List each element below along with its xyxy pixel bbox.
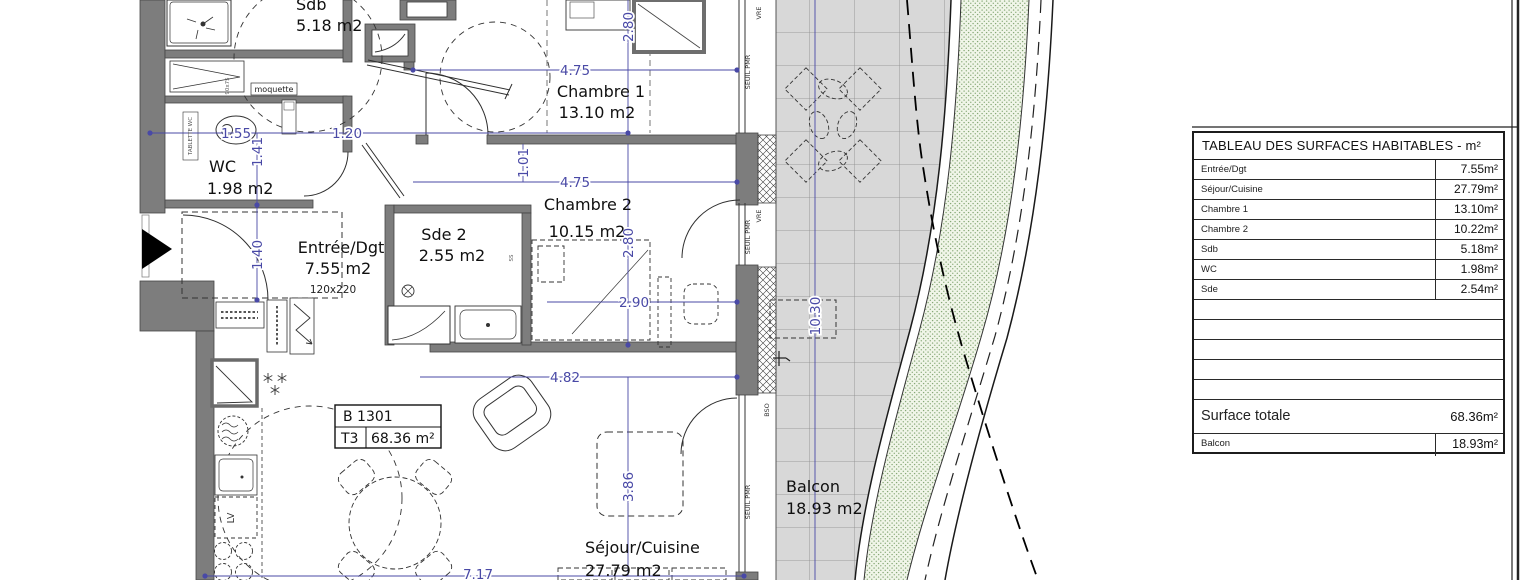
- insulated-wall-hatch: [758, 135, 776, 203]
- row-value: 13.10m²: [1435, 200, 1503, 219]
- room-area-sdb: 5.18 m2: [296, 16, 362, 35]
- dim-10-30: 10.30: [808, 297, 824, 336]
- insulated-wall-hatch: [758, 267, 776, 393]
- room-label-balcon: Balcon: [786, 477, 840, 496]
- table-row: Séjour/Cuisine 27.79m²: [1194, 180, 1503, 200]
- table-balcony-row: Balcon 18.93m²: [1194, 434, 1503, 456]
- room-label-wc: WC: [209, 157, 236, 176]
- dim-1-01: 1.01: [516, 148, 532, 178]
- room-label-entree: Entrée/Dgt: [298, 238, 385, 257]
- dim-1-20: 1.20: [332, 126, 362, 142]
- row-value: 10.22m²: [1435, 220, 1503, 239]
- room-label-sdb: Sdb: [296, 0, 326, 14]
- row-label: Séjour/Cuisine: [1194, 180, 1435, 199]
- table-row: Sdb 5.18m²: [1194, 240, 1503, 260]
- table-total-row: Surface totale 68.36m²: [1194, 400, 1503, 434]
- label-seuil-pmr-2: SEUIL PMR: [744, 219, 752, 254]
- label-tablette-wc: TABLETTE WC: [188, 117, 194, 156]
- row-label: Entrée/Dgt: [1194, 160, 1435, 179]
- room-label-chambre1: Chambre 1: [557, 82, 645, 101]
- label-seuil-pmr-3: SEUIL PMR: [744, 484, 752, 519]
- entrance-arrow-icon: [142, 229, 172, 269]
- armchair: [467, 369, 557, 457]
- architectural-sheet: 4.75 2.80 1.55 1.20 1.41 1.40 1.01 4.75 …: [0, 0, 1527, 580]
- table-empty-row: [1194, 320, 1503, 340]
- dim-1-41: 1.41: [250, 137, 266, 167]
- dim-2-90: 2.90: [619, 295, 649, 311]
- table-row: Entrée/Dgt 7.55m²: [1194, 160, 1503, 180]
- room-area-sde2: 2.55 m2: [419, 246, 485, 265]
- kitchen-units: [212, 298, 314, 580]
- unit-code: B 1301: [343, 409, 393, 425]
- table-row: WC 1.98m²: [1194, 260, 1503, 280]
- desk-and-chair: [658, 277, 718, 347]
- room-area-sejour: 27.79 m2: [585, 561, 662, 580]
- balcony-value: 18.93m²: [1435, 434, 1503, 456]
- room-label-sejour: Séjour/Cuisine: [585, 538, 700, 557]
- total-value: 68.36m²: [1435, 400, 1503, 433]
- row-value: 1.98m²: [1435, 260, 1503, 279]
- row-value: 2.54m²: [1435, 280, 1503, 299]
- unit-label-box: B 1301 T3 68.36 m²: [335, 405, 441, 448]
- room-area-chambre2: 10.15 m2: [549, 222, 626, 241]
- surfaces-table-title: TABLEAU DES SURFACES HABITABLES - m²: [1194, 133, 1503, 160]
- label-vre-2: VRE: [755, 209, 763, 222]
- dim-1-55: 1.55: [221, 126, 251, 142]
- room-area-balcon: 18.93 m2: [786, 499, 863, 518]
- label-moquette: moquette: [255, 85, 294, 94]
- dim-4-75-mid: 4.75: [560, 175, 590, 191]
- table-empty-row: [1194, 360, 1503, 380]
- room-area-chambre1: 13.10 m2: [559, 103, 636, 122]
- row-label: Chambre 2: [1194, 220, 1435, 239]
- dim-4-82: 4.82: [550, 370, 580, 386]
- table-row: Chambre 2 10.22m²: [1194, 220, 1503, 240]
- row-label: Sde: [1194, 280, 1435, 299]
- dining-table: [335, 456, 455, 580]
- row-value: 7.55m²: [1435, 160, 1503, 179]
- label-bso: BSO: [763, 403, 771, 417]
- row-value: 5.18m²: [1435, 240, 1503, 259]
- room-label-sde2: Sde 2: [421, 225, 466, 244]
- label-seuil-pmr-1: SEUIL PMR: [744, 54, 752, 89]
- room-area-entree: 7.55 m2: [305, 259, 371, 278]
- rug-dashed: [597, 432, 683, 516]
- total-label: Surface totale: [1194, 400, 1435, 433]
- row-value: 27.79m²: [1435, 180, 1503, 199]
- label-lv: LV: [226, 512, 237, 523]
- balcony-label: Balcon: [1194, 434, 1435, 456]
- label-ss: SS: [509, 254, 515, 261]
- dim-2-80-top: 2.80: [621, 12, 637, 42]
- dim-3-86: 3.86: [621, 472, 637, 502]
- table-empty-row: [1194, 380, 1503, 400]
- table-row: Chambre 1 13.10m²: [1194, 200, 1503, 220]
- unit-area: 68.36 m²: [371, 431, 435, 447]
- table-empty-row: [1194, 300, 1503, 320]
- table-empty-row: [1194, 340, 1503, 360]
- room-label-chambre2: Chambre 2: [544, 195, 632, 214]
- label-shower-size: 90x75: [225, 77, 231, 95]
- row-label: Chambre 1: [1194, 200, 1435, 219]
- row-label: WC: [1194, 260, 1435, 279]
- unit-type: T3: [340, 431, 358, 447]
- duct-shaft: [407, 2, 447, 17]
- row-label: Sdb: [1194, 240, 1435, 259]
- door-size-note: 120x220: [310, 284, 356, 296]
- room-area-wc: 1.98 m2: [207, 179, 273, 198]
- surfaces-table: TABLEAU DES SURFACES HABITABLES - m² Ent…: [1192, 131, 1505, 454]
- dim-1-40: 1.40: [250, 240, 266, 270]
- duct-shaft: [372, 30, 408, 56]
- label-vre-1: VRE: [755, 6, 763, 19]
- dim-4-75-top: 4.75: [560, 63, 590, 79]
- dim-7-17: 7.17: [463, 567, 493, 580]
- table-row: Sde 2.54m²: [1194, 280, 1503, 300]
